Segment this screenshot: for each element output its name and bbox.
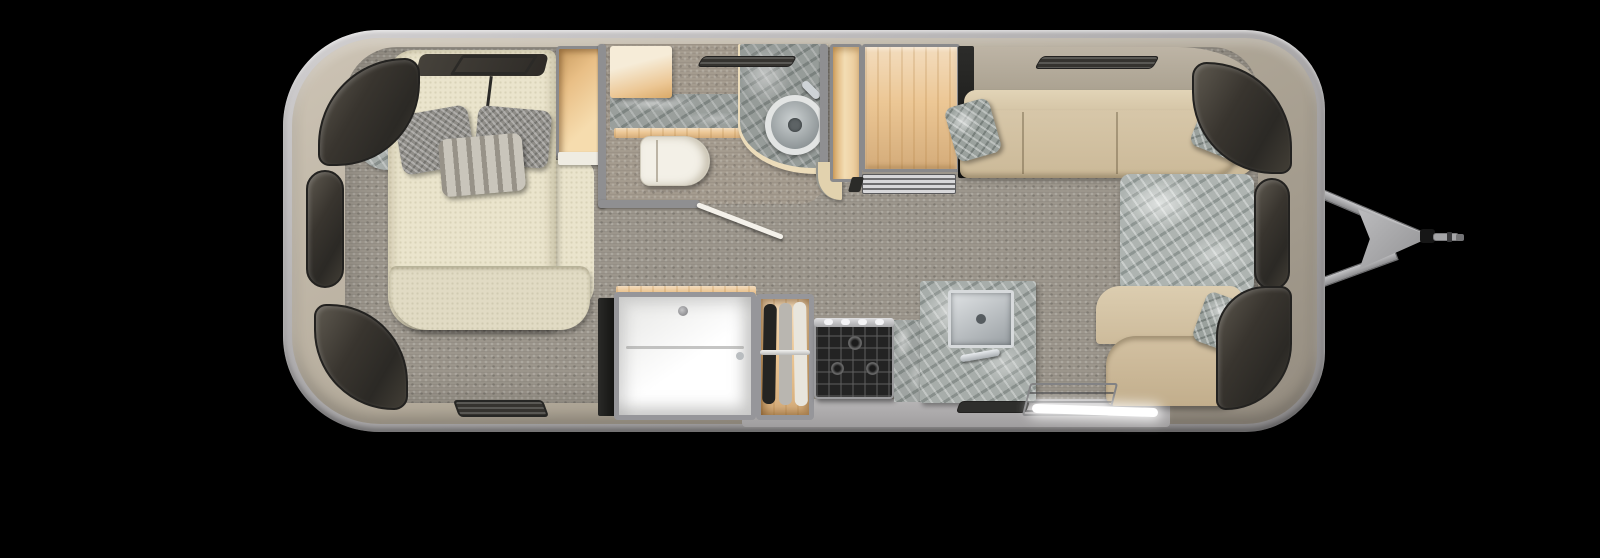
- bathroom-counter: [610, 94, 756, 130]
- shower-head: [678, 306, 688, 316]
- burner-bottom-right: [866, 362, 879, 375]
- cooktop-knob-1: [824, 319, 833, 325]
- appliance-grill: [862, 174, 956, 194]
- window-rear-left-mid: [306, 170, 344, 288]
- lounge-table: [1120, 174, 1254, 292]
- pantry-cabinet: [830, 44, 862, 182]
- bathroom-wall-vent: [697, 56, 797, 67]
- shower-valve: [736, 352, 744, 360]
- cooktop-knob-3: [858, 319, 867, 325]
- burner-bottom-left: [831, 362, 844, 375]
- shower-bench-seam: [626, 346, 744, 349]
- bed-foot-cushion: [390, 266, 590, 330]
- bathroom-cabinet: [610, 46, 672, 98]
- bathroom-sink-drain: [788, 118, 802, 132]
- floorplan-stage: [0, 0, 1600, 558]
- sidewall-vent-front: [1034, 56, 1160, 69]
- hitch-tongue-tip: [1456, 234, 1464, 241]
- bathroom-wall-right: [820, 44, 828, 170]
- bathroom-wall-bottom: [598, 200, 700, 208]
- sofa-seat-seam-2: [1116, 112, 1118, 174]
- sidewall-vent-rear: [453, 400, 549, 417]
- kitchen-sink-drain: [976, 314, 986, 324]
- toe-kick-vent: [956, 401, 1030, 413]
- bed-accent-pillow: [438, 132, 527, 197]
- sofa-seat-seam-1: [1022, 112, 1024, 174]
- window-front-right-mid: [1254, 178, 1290, 290]
- cooktop-knob-2: [841, 319, 850, 325]
- cooktop: [814, 321, 894, 399]
- burner-top-center: [848, 336, 862, 350]
- refrigerator: [862, 44, 960, 172]
- cooktop-knob-4: [875, 319, 884, 325]
- bathroom-wall-left: [598, 44, 606, 208]
- toilet-lid-seam: [656, 140, 658, 182]
- hitch-tongue-band: [1447, 232, 1452, 242]
- closet-hanging-rod: [760, 350, 810, 355]
- toilet: [640, 136, 710, 186]
- roof-vent-frame: [450, 55, 538, 75]
